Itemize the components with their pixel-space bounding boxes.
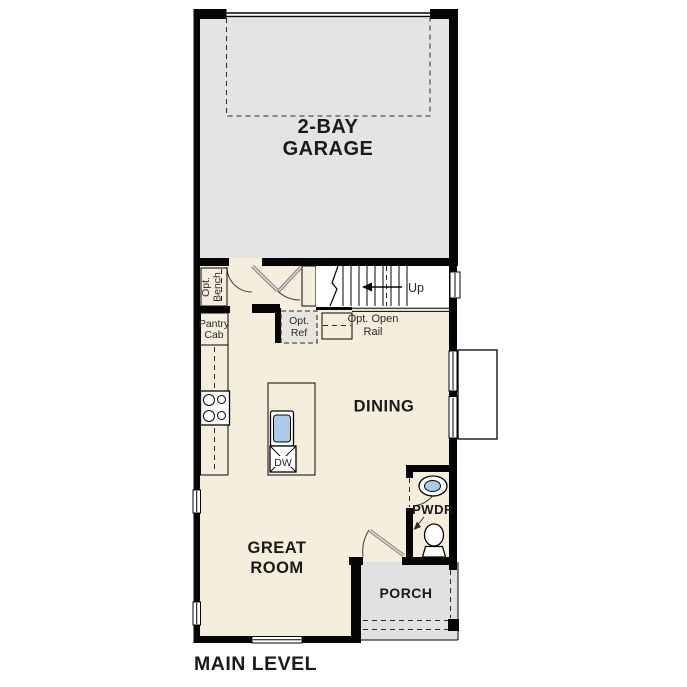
great-room-label-line2: ROOM	[250, 559, 303, 577]
opt-bench-label-line2: Bench	[212, 272, 224, 302]
opt-open-rail-label-line2: Rail	[364, 326, 383, 338]
toilet-bowl	[425, 524, 444, 546]
plan-title: MAIN LEVEL	[194, 653, 317, 675]
dining-label: DINING	[354, 398, 415, 416]
porch-floor	[361, 562, 458, 640]
opt-open-rail-label-line1: Opt. Open	[348, 313, 399, 325]
floor-plan-svg: 2-BAY GARAGE DINING GREAT ROOM PWDR PORC…	[0, 0, 687, 687]
powder-label: PWDR	[412, 502, 454, 517]
porch-label: PORCH	[379, 585, 432, 601]
floor-plan-page: 2-BAY GARAGE DINING GREAT ROOM PWDR PORC…	[0, 0, 687, 687]
powder-sink-basin	[425, 481, 441, 492]
garage-label-line2: GARAGE	[283, 138, 374, 160]
toilet-base	[423, 547, 446, 558]
stairs-up-label: Up	[408, 281, 424, 295]
pantry-label-line2: Cab	[204, 329, 223, 341]
bench-wall	[195, 306, 230, 313]
opt-bench-label-line1: Opt.	[200, 277, 212, 297]
island-sink-basin	[274, 415, 291, 442]
great-room-label-line1: GREAT	[247, 539, 306, 557]
opt-ref-label-line2: Ref	[291, 327, 307, 339]
ref-wall	[275, 308, 281, 343]
powder-top-wall	[406, 465, 457, 472]
garage-entry-threshold	[229, 258, 262, 266]
dishwasher-label: DW	[274, 457, 292, 469]
porch-post	[448, 619, 459, 631]
opt-ref-label-line1: Opt.	[289, 315, 309, 327]
bay-window-box	[458, 350, 497, 439]
garage-label-line1: 2-BAY	[298, 116, 359, 138]
